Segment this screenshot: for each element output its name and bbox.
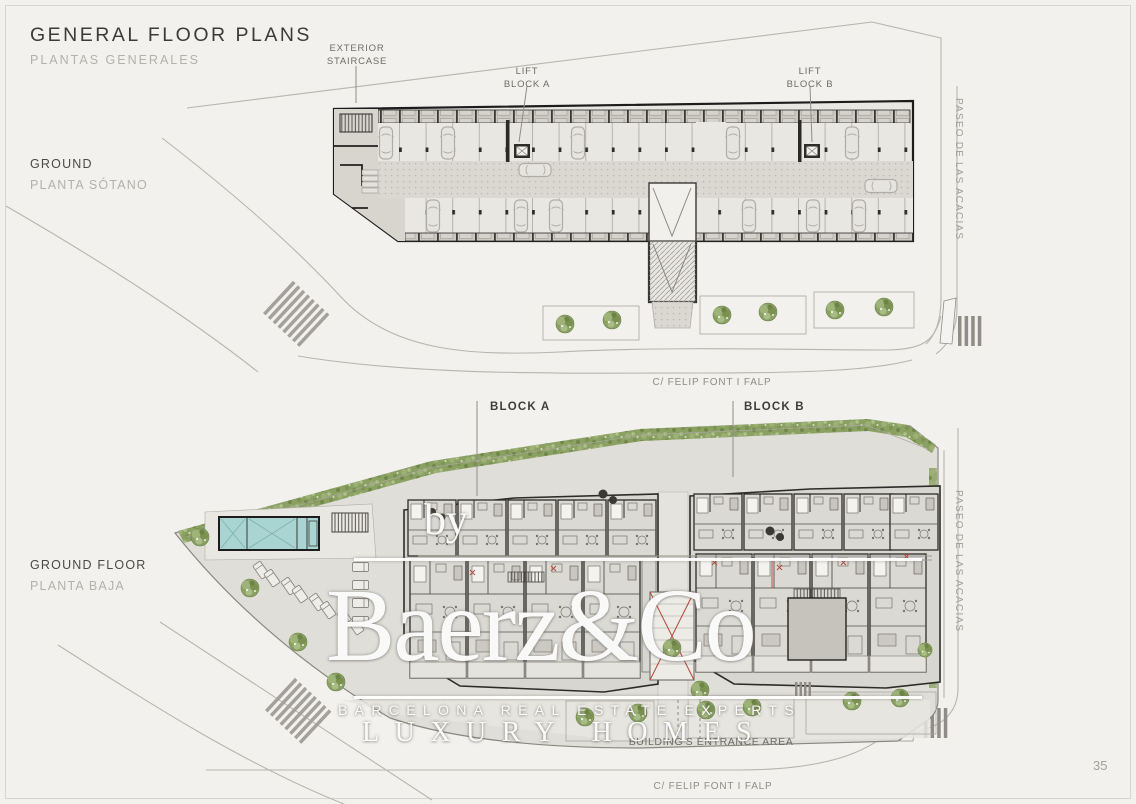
block-a-label: BLOCK A: [490, 401, 550, 413]
brochure-page: GENERAL FLOOR PLANS PLANTAS GENERALES EX…: [0, 0, 1136, 804]
ground-floor-label-es: PLANTA BAJA: [30, 579, 147, 593]
page-title: GENERAL FLOOR PLANS: [30, 24, 312, 47]
lift-block-a-label: LIFT BLOCK A: [489, 65, 565, 92]
lift-block-a-shape: [514, 144, 530, 158]
street-paseo-acacias-bottom: PASEO DE LAS ACACIAS: [953, 490, 964, 640]
swimming-pool: [219, 517, 319, 550]
crosswalk-bottom-left: [265, 678, 331, 744]
lift-block-b-shape: [804, 144, 820, 158]
basement-label-es: PLANTA SÓTANO: [30, 178, 148, 192]
basement-label-en: GROUND: [30, 157, 148, 171]
building-entrance-label: BUILDING'S ENTRANCE AREA: [591, 736, 831, 748]
street-felip-font-bottom: C/ FELIP FONT I FALP: [613, 781, 813, 792]
parking-ramp: [649, 183, 696, 328]
crosswalk-top-left: [263, 281, 329, 347]
lift-block-b-label: LIFT BLOCK B: [772, 65, 848, 92]
entrance-ramp: [650, 592, 694, 680]
ground-floor-label-en: GROUND FLOOR: [30, 558, 147, 572]
block-b-label: BLOCK B: [744, 401, 805, 413]
crosswalk-top-right: [940, 298, 981, 346]
floor-plan-drawing: [0, 0, 1136, 804]
block-b-building: [690, 486, 940, 688]
street-felip-font-top: C/ FELIP FONT I FALP: [612, 377, 812, 388]
block-a-building: [404, 494, 658, 692]
street-paseo-acacias-top: PASEO DE LAS ACACIAS: [953, 98, 964, 248]
exterior-staircase-label: EXTERIOR STAIRCASE: [312, 42, 402, 69]
basement-parking-plan: [334, 101, 913, 328]
communal-hall: [788, 598, 846, 660]
page-subtitle: PLANTAS GENERALES: [30, 53, 312, 67]
ground-floor-plan: [175, 419, 940, 748]
exterior-staircase-shape: [340, 114, 372, 132]
page-number: 35: [1093, 758, 1107, 773]
